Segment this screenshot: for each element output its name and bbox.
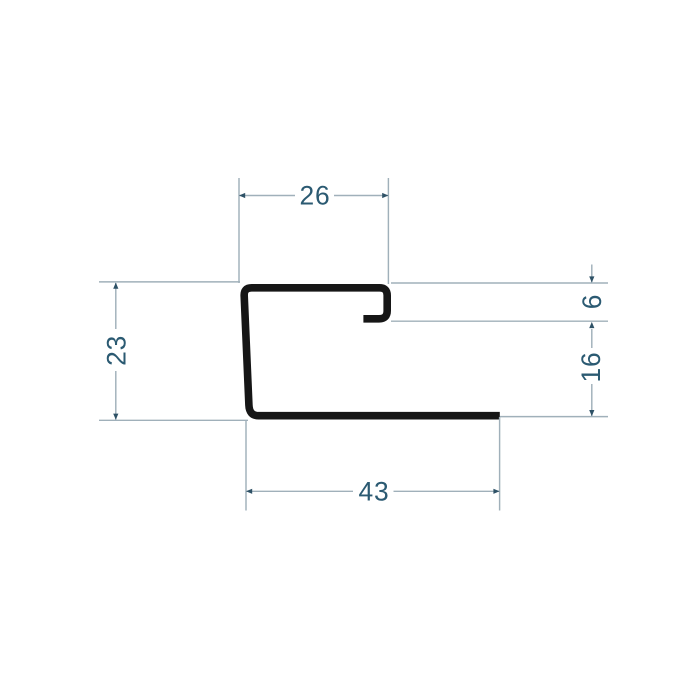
- svg-text:26: 26: [300, 181, 331, 211]
- svg-text:43: 43: [359, 477, 390, 507]
- svg-text:16: 16: [576, 352, 606, 383]
- svg-text:6: 6: [577, 294, 607, 309]
- svg-text:23: 23: [102, 335, 132, 366]
